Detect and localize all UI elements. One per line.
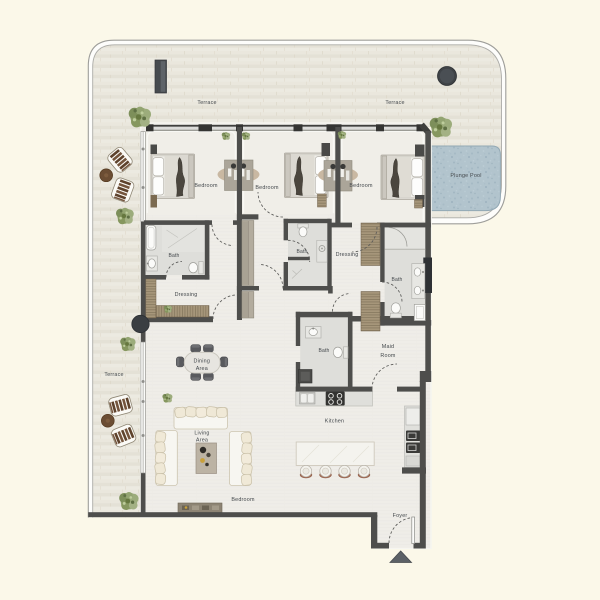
svg-text:Terrace: Terrace	[197, 100, 216, 106]
svg-text:Bath: Bath	[319, 348, 330, 354]
svg-text:Bedroom: Bedroom	[194, 183, 218, 189]
svg-text:Dining: Dining	[194, 358, 210, 364]
svg-text:Terrace: Terrace	[104, 372, 123, 378]
svg-text:Foyer: Foyer	[393, 513, 408, 519]
svg-text:Bedroom: Bedroom	[349, 183, 373, 189]
svg-text:Area: Area	[196, 438, 208, 444]
svg-text:Terrace: Terrace	[385, 100, 404, 106]
svg-text:Bedroom: Bedroom	[231, 497, 255, 503]
svg-text:Bath: Bath	[297, 249, 308, 255]
svg-text:Room: Room	[380, 353, 395, 359]
svg-text:Plunge Pool: Plunge Pool	[450, 173, 481, 179]
svg-text:Dressing: Dressing	[175, 292, 198, 298]
svg-text:Kitchen: Kitchen	[325, 419, 344, 425]
svg-text:Bath: Bath	[392, 277, 403, 283]
svg-text:Bedroom: Bedroom	[255, 185, 279, 191]
svg-text:Area: Area	[196, 366, 208, 372]
svg-text:Living: Living	[194, 431, 209, 437]
svg-text:Maid: Maid	[382, 344, 394, 350]
svg-text:Dressing: Dressing	[336, 252, 359, 258]
svg-text:Bath: Bath	[169, 253, 180, 259]
